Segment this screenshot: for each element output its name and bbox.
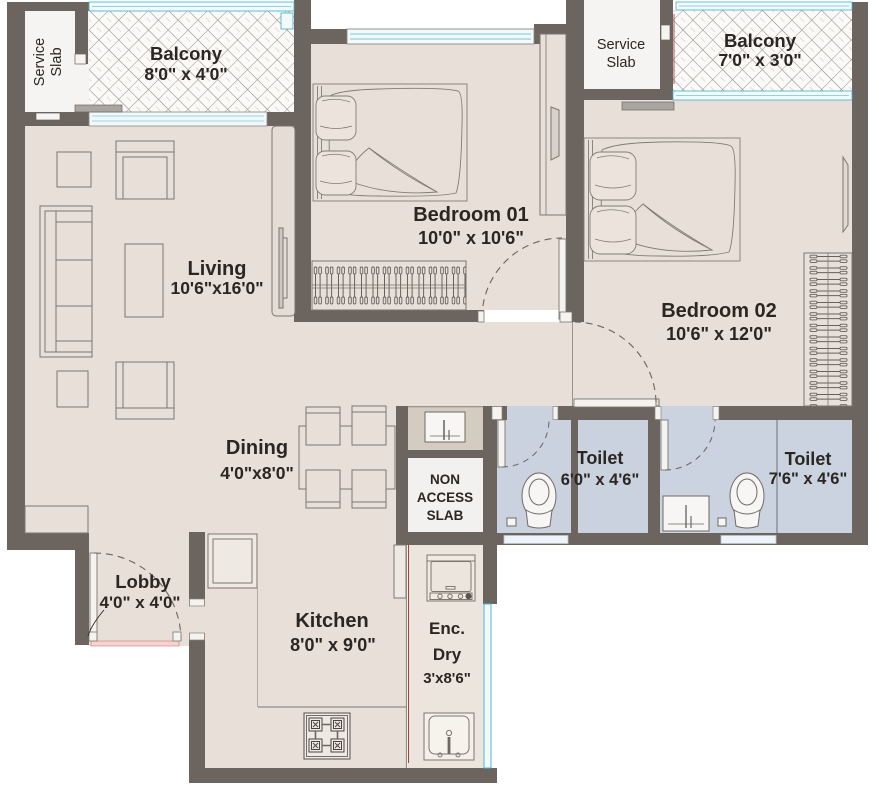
svg-text:Enc.: Enc. (429, 619, 465, 638)
svg-text:7'0" x 3'0": 7'0" x 3'0" (718, 50, 801, 70)
svg-text:8'0" x 4'0": 8'0" x 4'0" (144, 64, 227, 84)
svg-text:Dry: Dry (433, 645, 462, 664)
svg-text:Slab: Slab (49, 47, 65, 76)
svg-text:ACCESS: ACCESS (417, 490, 473, 505)
svg-text:Living: Living (188, 258, 247, 280)
svg-text:10'0" x 10'6": 10'0" x 10'6" (418, 228, 524, 248)
svg-text:Service: Service (597, 37, 645, 53)
svg-text:NON: NON (430, 472, 460, 487)
svg-text:Toilet: Toilet (577, 448, 624, 468)
svg-text:4'0"x8'0": 4'0"x8'0" (220, 463, 294, 483)
svg-text:7'6" x 4'6": 7'6" x 4'6" (769, 470, 848, 488)
svg-text:10'6"x16'0": 10'6"x16'0" (170, 278, 263, 298)
svg-text:Lobby: Lobby (115, 571, 171, 592)
svg-text:Service: Service (32, 38, 48, 86)
svg-text:4'0" x 4'0": 4'0" x 4'0" (100, 593, 181, 612)
svg-text:Toilet: Toilet (785, 449, 832, 469)
svg-text:10'6" x 12'0": 10'6" x 12'0" (666, 324, 772, 344)
svg-text:Kitchen: Kitchen (295, 610, 368, 632)
svg-text:Bedroom 02: Bedroom 02 (661, 300, 777, 322)
svg-text:Slab: Slab (606, 55, 635, 71)
svg-text:Balcony: Balcony (150, 43, 223, 64)
svg-text:Dining: Dining (226, 437, 288, 459)
svg-text:Bedroom 01: Bedroom 01 (413, 204, 529, 226)
svg-text:3'x8'6": 3'x8'6" (423, 670, 471, 687)
svg-text:SLAB: SLAB (427, 508, 464, 523)
svg-text:8'0" x 9'0": 8'0" x 9'0" (290, 635, 376, 655)
svg-text:Balcony: Balcony (724, 30, 797, 51)
svg-text:6'0" x 4'6": 6'0" x 4'6" (561, 471, 640, 489)
